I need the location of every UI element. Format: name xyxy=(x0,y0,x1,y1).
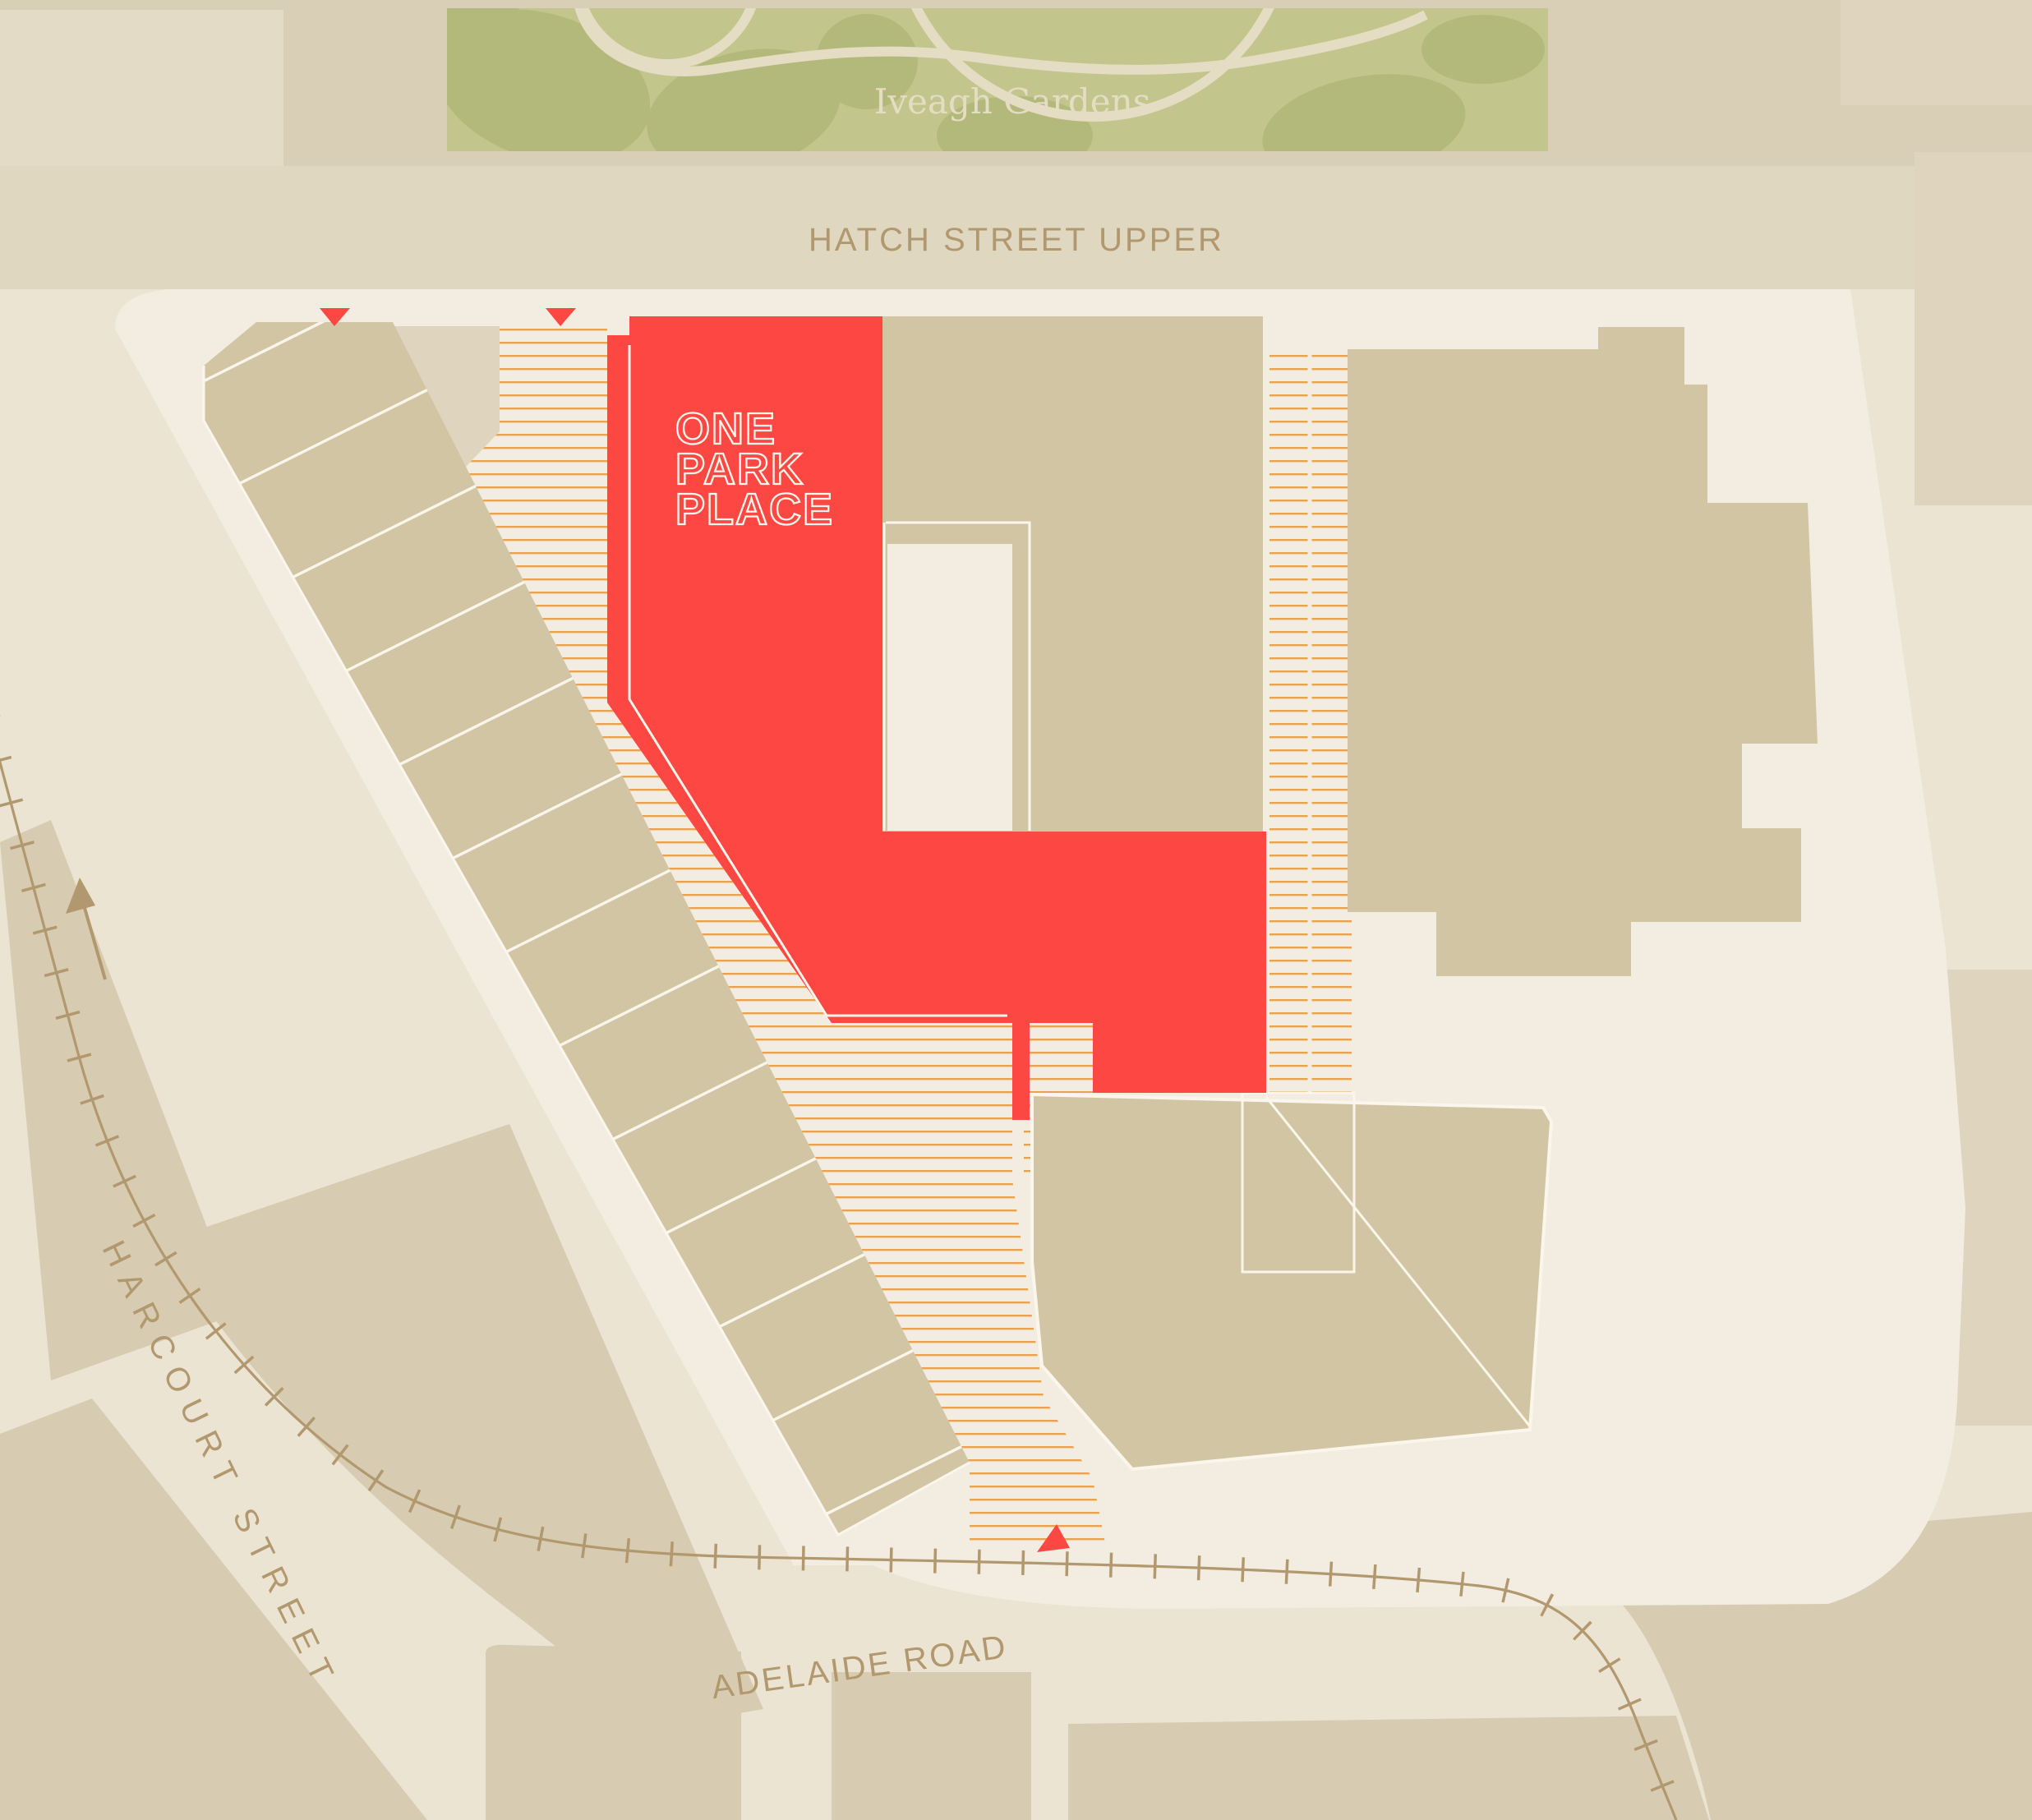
south-building xyxy=(1032,1093,1551,1469)
middle-building xyxy=(882,316,1263,832)
opp-label-line3: PLACE xyxy=(675,485,834,534)
south-parcel-1 xyxy=(486,1645,741,1820)
map-canvas: Iveagh Gardens xyxy=(0,0,2032,1820)
site-map: Iveagh Gardens xyxy=(0,0,2032,1820)
south-parcel-2 xyxy=(832,1672,1031,1820)
northeast-corner-parcel xyxy=(1841,0,2032,105)
hatch-street-label: HATCH STREET UPPER xyxy=(809,222,1224,258)
iveagh-gardens-label: Iveagh Gardens xyxy=(874,81,1151,122)
south-parcel-3 xyxy=(1068,1716,1709,1820)
east-parcel-1 xyxy=(1915,152,2032,505)
northwest-block xyxy=(0,10,283,166)
middle-building-courtyard xyxy=(887,544,1012,831)
